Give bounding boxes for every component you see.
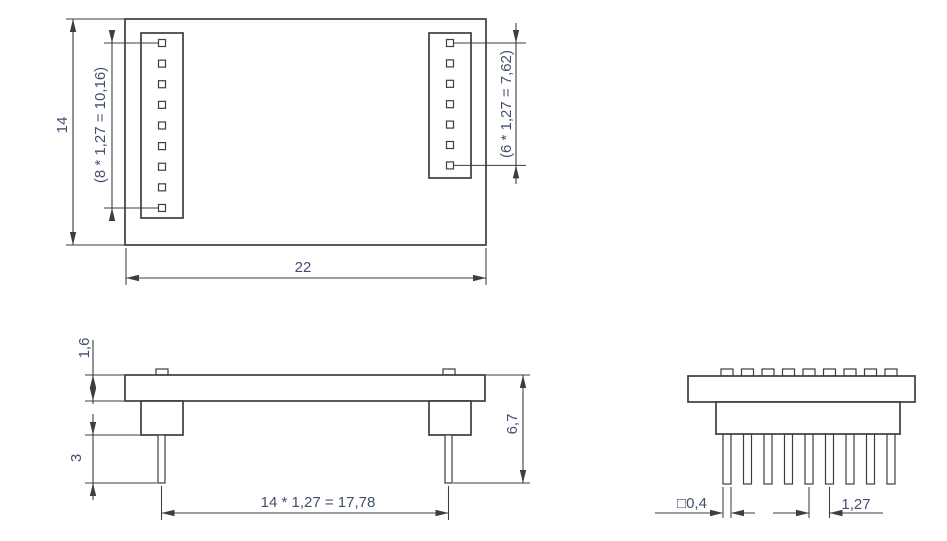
- pin-pad: [159, 40, 166, 47]
- pin: [723, 434, 731, 484]
- pin-pad: [447, 101, 454, 108]
- pin: [805, 434, 813, 484]
- pin-pad: [447, 162, 454, 169]
- pin-tip: [762, 369, 774, 376]
- pin-tip: [885, 369, 897, 376]
- dim-label-pin-protrusion: 3: [68, 454, 85, 462]
- pin-pad: [159, 163, 166, 170]
- arrowhead: [513, 165, 519, 178]
- arrowhead: [436, 510, 449, 516]
- pin: [744, 434, 752, 484]
- arrowhead: [90, 483, 96, 496]
- dim-label-board-width: 22: [295, 259, 312, 276]
- arrowhead: [109, 208, 115, 221]
- pin: [887, 434, 895, 484]
- pin-pad: [447, 121, 454, 128]
- arrowhead: [70, 232, 76, 245]
- pcb-side-outline: [125, 375, 485, 401]
- pcb-end-outline: [688, 376, 915, 402]
- arrowhead: [70, 19, 76, 32]
- arrowhead: [162, 510, 175, 516]
- arrowhead: [126, 275, 139, 281]
- dim-label-left-pin-row-span: (8 * 1,27 = 10,16): [92, 67, 109, 183]
- arrowhead: [796, 510, 809, 516]
- technical-drawing-page: 14 (8 * 1,27 = 10,16) (6 * 1,27 = 7,62) …: [0, 0, 947, 541]
- arrowhead: [109, 30, 115, 43]
- connector-body: [429, 401, 471, 435]
- pin-pad: [447, 40, 454, 47]
- pin: [158, 435, 165, 483]
- pin-pad: [159, 122, 166, 129]
- pin: [846, 434, 854, 484]
- connector-body: [716, 402, 900, 434]
- pin-pad: [159, 204, 166, 211]
- pin: [785, 434, 793, 484]
- connector-body: [141, 401, 183, 435]
- dim-label-board-height: 14: [54, 117, 71, 134]
- dim-label-overall-height: 6,7: [504, 414, 521, 435]
- top-view: [66, 19, 526, 285]
- pin: [826, 434, 834, 484]
- pin-pad: [447, 80, 454, 87]
- pin-pad: [159, 184, 166, 191]
- dim-label-board-thickness: 1,6: [76, 338, 93, 359]
- arrowhead: [513, 30, 519, 43]
- dim-label-right-pin-row-span: (6 * 1,27 = 7,62): [498, 50, 515, 158]
- pin-tip: [865, 369, 877, 376]
- arrowhead: [731, 510, 744, 516]
- pin: [867, 434, 875, 484]
- pin-tip: [803, 369, 815, 376]
- arrowhead: [473, 275, 486, 281]
- pin-tip: [443, 369, 455, 375]
- pin-pad: [447, 142, 454, 149]
- front-view: [85, 340, 530, 520]
- pin-tip: [844, 369, 856, 376]
- pin: [445, 435, 452, 483]
- pin-tip: [824, 369, 836, 376]
- pin-pad: [159, 101, 166, 108]
- pin-pad: [159, 143, 166, 150]
- pin-pad: [159, 81, 166, 88]
- arrowhead: [90, 422, 96, 435]
- dim-label-pin-cross-section: □0,4: [677, 495, 707, 512]
- pin: [764, 434, 772, 484]
- pin-tip: [783, 369, 795, 376]
- pin-tip: [156, 369, 168, 375]
- pin-pad: [159, 60, 166, 67]
- arrowhead: [710, 510, 723, 516]
- dim-label-pin-column-span: 14 * 1,27 = 17,78: [261, 494, 376, 511]
- dim-label-pin-pitch: 1,27: [841, 496, 870, 513]
- pin-pad: [447, 60, 454, 67]
- arrowhead: [520, 470, 526, 483]
- dimension-drawing: 14 (8 * 1,27 = 10,16) (6 * 1,27 = 7,62) …: [0, 0, 947, 541]
- pin-tip: [721, 369, 733, 376]
- pin-tip: [742, 369, 754, 376]
- arrowhead: [520, 375, 526, 388]
- arrowhead: [90, 375, 96, 388]
- arrowhead: [90, 388, 96, 401]
